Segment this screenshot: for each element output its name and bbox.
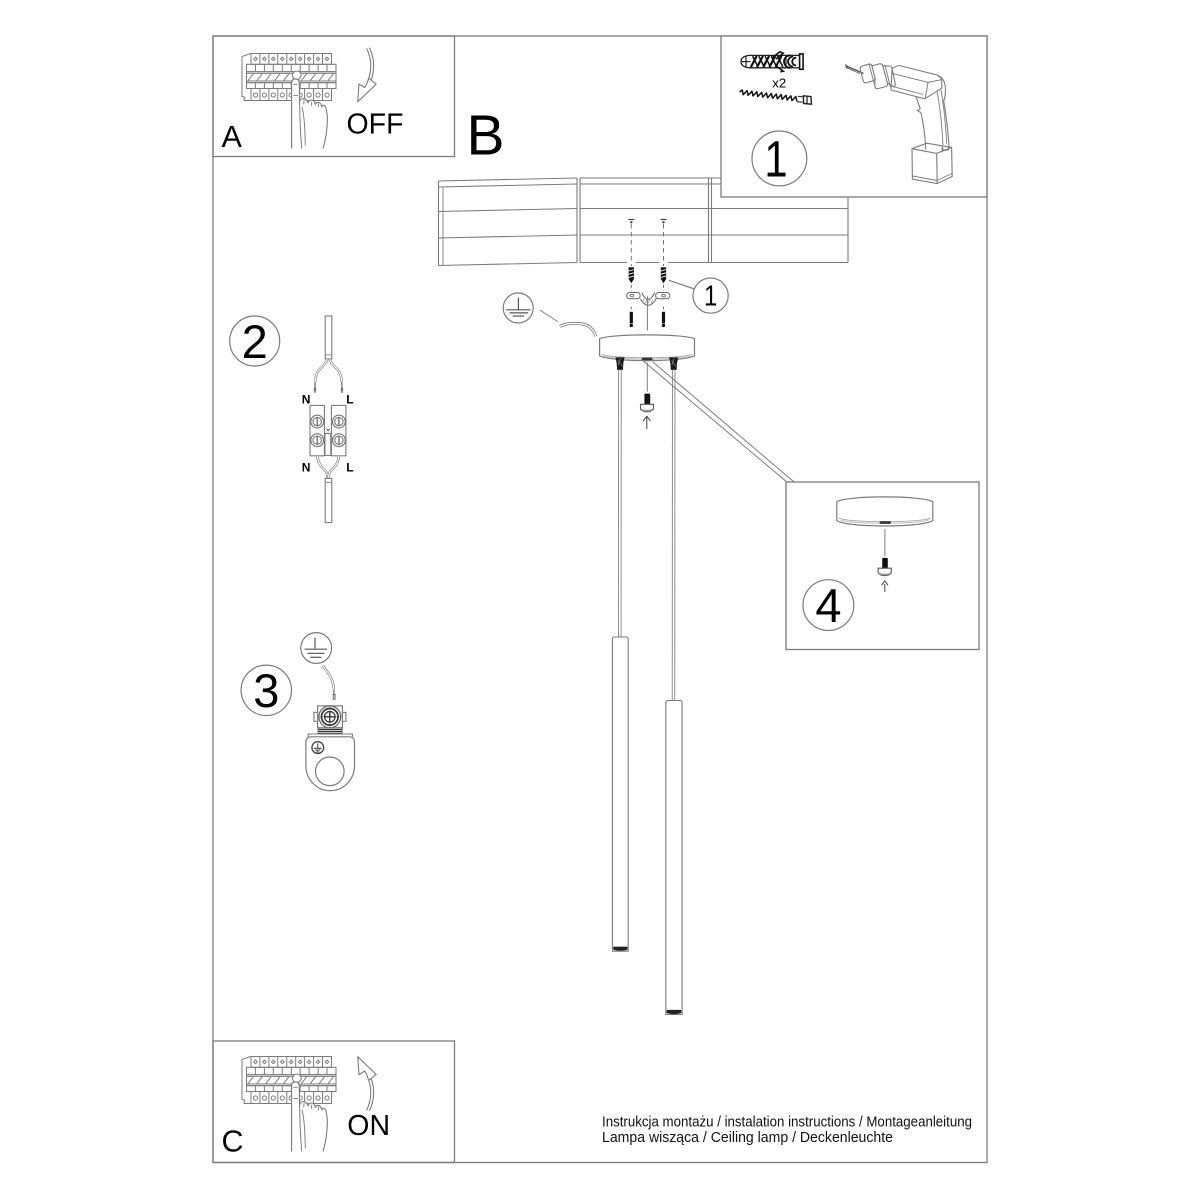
svg-text:N: N — [302, 460, 311, 474]
svg-text:C: C — [222, 1125, 244, 1159]
svg-text:L: L — [346, 392, 353, 406]
svg-text:Instrukcja montażu / instalati: Instrukcja montażu / instalation instruc… — [602, 1115, 972, 1131]
svg-text:2: 2 — [242, 315, 268, 368]
svg-text:4: 4 — [815, 579, 841, 632]
svg-text:ON: ON — [347, 1110, 390, 1142]
svg-text:3: 3 — [253, 664, 279, 717]
svg-text:x2: x2 — [772, 76, 786, 91]
svg-text:OFF: OFF — [347, 109, 404, 141]
svg-text:1: 1 — [764, 131, 787, 188]
svg-text:A: A — [222, 120, 243, 154]
svg-text:B: B — [467, 104, 505, 168]
svg-text:N: N — [302, 392, 311, 406]
svg-text:Lampa wisząca / Ceiling lamp /: Lampa wisząca / Ceiling lamp / Deckenleu… — [602, 1130, 893, 1146]
svg-text:1: 1 — [704, 280, 717, 312]
svg-text:L: L — [346, 460, 353, 474]
